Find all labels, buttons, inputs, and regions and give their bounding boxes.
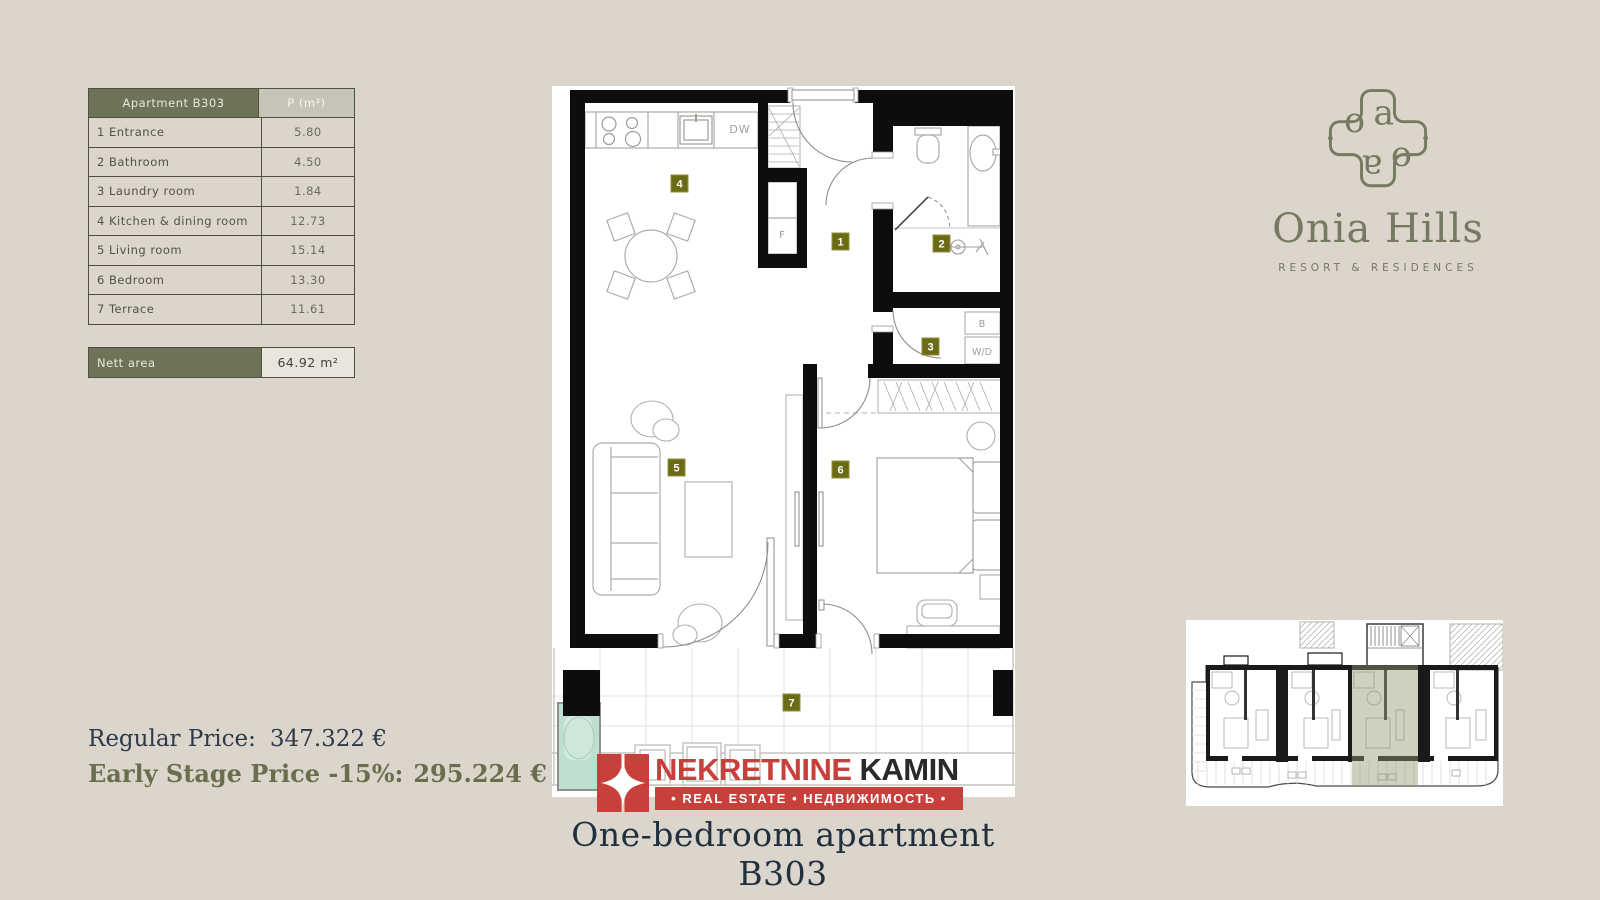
- table-row: 6 Bedroom 13.30: [89, 266, 354, 296]
- building-overview-plan: [1168, 610, 1503, 810]
- row-label: 2 Bathroom: [89, 148, 262, 177]
- regular-price-line: Regular Price:347.322 €: [88, 726, 547, 752]
- boiler-label: B: [979, 319, 986, 330]
- table-header-area: P (m²): [259, 89, 354, 117]
- apartment-floorplan: DW F B W/D: [552, 86, 1015, 797]
- hatched-area: [1300, 622, 1334, 648]
- row-value: 12.73: [262, 207, 354, 236]
- page-title: One-bedroom apartment B303: [523, 815, 1043, 893]
- washer-label: W/D: [972, 347, 992, 358]
- row-value: 15.14: [262, 236, 354, 265]
- monogram-a: a: [1373, 93, 1394, 133]
- round-table-icon: [967, 422, 995, 450]
- table-row: 7 Terrace 11.61: [89, 295, 354, 324]
- entry-closet: [768, 106, 800, 168]
- agency-banner: • REAL ESTATE • НЕДВИЖИМОСТЬ •: [655, 787, 963, 810]
- monogram-o: o: [1344, 101, 1365, 141]
- table-row: 4 Kitchen & dining room 12.73: [89, 207, 354, 237]
- agency-logo: NEKRETNINEKAMIN • REAL ESTATE • НЕДВИЖИМ…: [597, 754, 963, 812]
- sofa-icon: [593, 443, 660, 595]
- agency-name-primary: NEKRETNINE: [655, 752, 852, 787]
- tv-icon: [795, 492, 799, 546]
- svg-text:1: 1: [837, 237, 843, 249]
- row-label: 6 Bedroom: [89, 266, 262, 295]
- regular-price-value: 347.322 €: [270, 726, 387, 752]
- agency-star-icon: [597, 754, 649, 812]
- pricing-block: Regular Price:347.322 € Early Stage Pric…: [88, 726, 547, 788]
- early-price-line: Early Stage Price -15%:295.224 €: [88, 759, 547, 788]
- svg-text:7: 7: [788, 698, 794, 710]
- area-table-header: Apartment B303 P (m²): [89, 89, 354, 118]
- svg-text:3: 3: [927, 342, 933, 354]
- row-value: 11.61: [262, 295, 354, 324]
- table-row: 5 Living room 15.14: [89, 236, 354, 266]
- hatched-area: [1450, 624, 1503, 670]
- brand-name: Onia Hills: [1253, 206, 1503, 252]
- highlighted-unit: [1352, 665, 1418, 786]
- wardrobe-icon: [878, 380, 1005, 413]
- onia-monogram-icon: o a o a: [1324, 82, 1432, 198]
- room-badge-1: 1: [832, 233, 849, 250]
- row-label: 1 Entrance: [89, 118, 262, 147]
- early-price-value: 295.224 €: [413, 759, 547, 788]
- regular-price-label: Regular Price:: [88, 726, 256, 752]
- early-price-label: Early Stage Price -15%:: [88, 759, 403, 788]
- monogram-o-rot: o: [1391, 139, 1412, 179]
- room-badge-7: 7: [783, 694, 800, 711]
- nightstand-icon: [980, 575, 1002, 599]
- svg-text:5: 5: [673, 463, 679, 475]
- monogram-a-rot: a: [1362, 147, 1383, 187]
- room-badge-5: 5: [668, 459, 685, 476]
- table-row: 2 Bathroom 4.50: [89, 148, 354, 178]
- nett-label: Nett area: [89, 348, 262, 377]
- row-value: 4.50: [262, 148, 354, 177]
- table-row: 1 Entrance 5.80: [89, 118, 354, 148]
- table-header-apartment: Apartment B303: [89, 89, 259, 117]
- svg-text:4: 4: [676, 179, 683, 191]
- dishwasher-label: DW: [729, 123, 750, 136]
- vanity-sink-icon: [968, 126, 1002, 226]
- row-label: 5 Living room: [89, 236, 262, 265]
- agency-name: NEKRETNINEKAMIN: [655, 754, 963, 786]
- terrace-plant-icon: [564, 717, 594, 759]
- row-value: 5.80: [262, 118, 354, 147]
- area-table: Apartment B303 P (m²) 1 Entrance 5.80 2 …: [88, 88, 355, 325]
- room-badge-3: 3: [922, 338, 939, 355]
- nett-value: 64.92 m²: [262, 348, 354, 377]
- row-value: 13.30: [262, 266, 354, 295]
- row-label: 4 Kitchen & dining room: [89, 207, 262, 236]
- table-row: 3 Laundry room 1.84: [89, 177, 354, 207]
- stairwell: [1367, 624, 1423, 668]
- row-label: 7 Terrace: [89, 295, 262, 324]
- brand-tagline: RESORT & RESIDENCES: [1253, 262, 1503, 274]
- brand-block: o a o a Onia Hills RESORT & RESIDENCES: [1253, 82, 1503, 274]
- sink-icon: [680, 114, 712, 144]
- tv-icon: [819, 492, 823, 546]
- agency-name-secondary: KAMIN: [860, 752, 959, 787]
- fridge-cabinet: [768, 182, 797, 254]
- toilet-icon: [915, 128, 941, 163]
- row-label: 3 Laundry room: [89, 177, 262, 206]
- agency-text: NEKRETNINEKAMIN • REAL ESTATE • НЕДВИЖИМ…: [655, 754, 963, 812]
- room-badge-4: 4: [671, 175, 688, 192]
- nett-area-row: Nett area 64.92 m²: [88, 347, 355, 378]
- fridge-label: F: [779, 230, 785, 241]
- room-badge-2: 2: [933, 235, 950, 252]
- svg-text:2: 2: [938, 239, 944, 251]
- coffee-table-icon: [685, 482, 732, 557]
- svg-text:6: 6: [837, 465, 843, 477]
- room-badge-6: 6: [832, 461, 849, 478]
- row-value: 1.84: [262, 177, 354, 206]
